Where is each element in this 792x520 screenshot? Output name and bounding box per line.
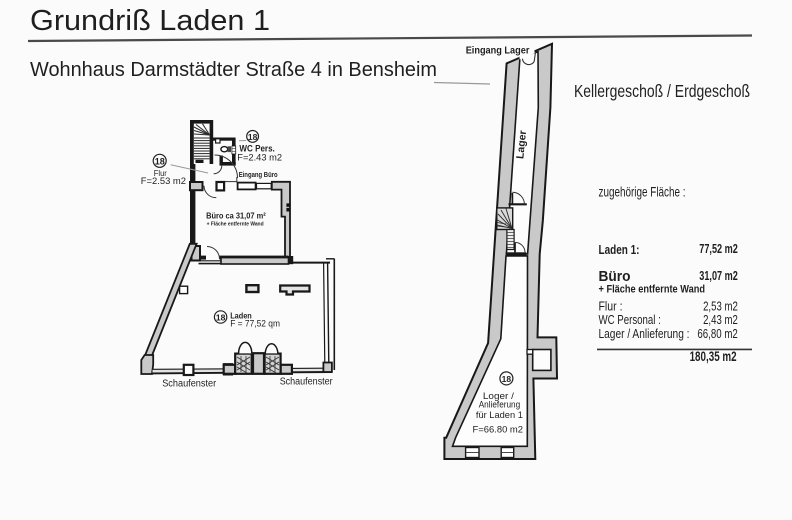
svg-text:18: 18 xyxy=(155,156,165,166)
svg-text:18: 18 xyxy=(502,374,512,384)
svg-text:Eingang Lager: Eingang Lager xyxy=(466,45,530,56)
svg-text:Büro ca 31,07 m²: Büro ca 31,07 m² xyxy=(206,211,266,221)
svg-text:Lager / Anlieferung :: Lager / Anlieferung : xyxy=(599,327,690,341)
svg-text:F = 77,52 qm: F = 77,52 qm xyxy=(230,318,280,329)
svg-text:2,43 m2: 2,43 m2 xyxy=(703,313,738,327)
svg-text:F=2.43 m2: F=2.43 m2 xyxy=(237,152,282,163)
svg-text:F=2.53 m2: F=2.53 m2 xyxy=(141,176,186,187)
svg-text:Eingang Büro: Eingang Büro xyxy=(239,172,278,179)
svg-text:Grundriß Laden 1: Grundriß Laden 1 xyxy=(30,5,270,37)
svg-text:Schaufenster: Schaufenster xyxy=(162,378,217,389)
svg-text:180,35 m2: 180,35 m2 xyxy=(690,349,737,364)
svg-text:18: 18 xyxy=(216,313,226,323)
svg-text:Wohnhaus Darmstädter Straße 4: Wohnhaus Darmstädter Straße 4 in Benshei… xyxy=(30,58,437,81)
svg-text:18: 18 xyxy=(248,132,258,142)
svg-text:31,07 m2: 31,07 m2 xyxy=(699,269,738,283)
svg-text:+ Fläche entfernte Wand: + Fläche entfernte Wand xyxy=(207,222,264,228)
svg-text:Schaufenster: Schaufenster xyxy=(280,376,334,387)
svg-text:66,80 m2: 66,80 m2 xyxy=(697,327,737,341)
svg-text:+ Fläche entfernte Wand: + Fläche entfernte Wand xyxy=(599,283,706,295)
svg-text:77,52 m2: 77,52 m2 xyxy=(699,242,738,256)
svg-text:F=66.80 m2: F=66.80 m2 xyxy=(473,424,524,435)
svg-text:Flur :: Flur : xyxy=(599,300,623,314)
svg-text:zugehörige Fläche :: zugehörige Fläche : xyxy=(599,185,686,200)
svg-text:Kellergeschoß / Erdgeschoß: Kellergeschoß / Erdgeschoß xyxy=(574,81,750,101)
svg-text:2,53 m2: 2,53 m2 xyxy=(703,300,738,314)
svg-text:für Laden 1: für Laden 1 xyxy=(476,410,523,420)
svg-text:Anlieferung: Anlieferung xyxy=(479,400,521,410)
svg-text:Laden 1:: Laden 1: xyxy=(599,243,640,257)
svg-text:WC Personal :: WC Personal : xyxy=(599,313,661,327)
